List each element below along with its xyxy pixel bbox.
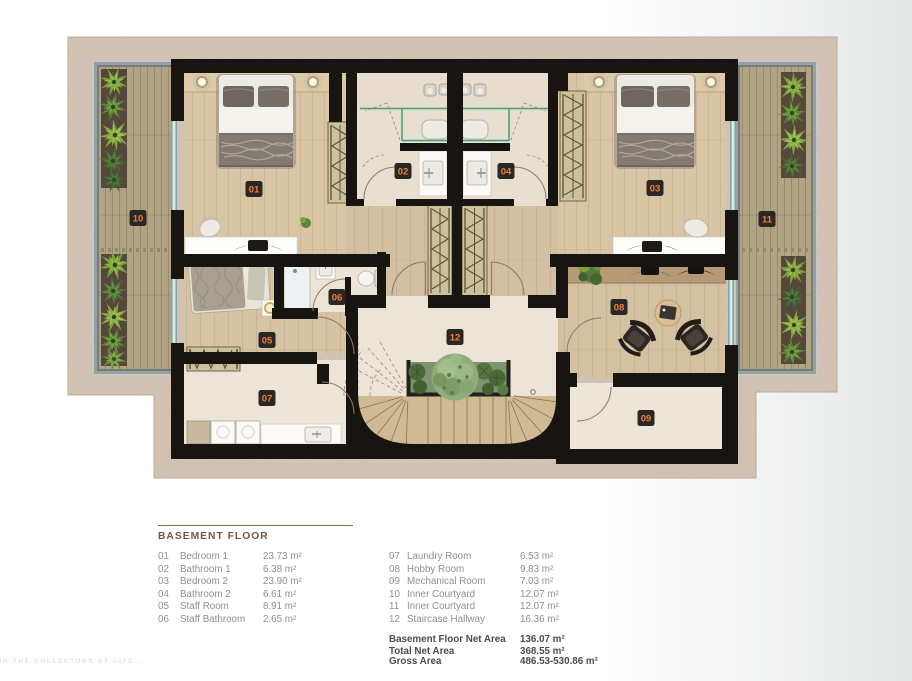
svg-text:04: 04 (501, 167, 512, 178)
svg-text:07: 07 (262, 394, 273, 405)
svg-text:05: 05 (262, 336, 273, 347)
svg-text:06: 06 (332, 293, 343, 304)
svg-text:08: 08 (614, 303, 625, 314)
svg-text:10: 10 (133, 214, 144, 225)
svg-text:12: 12 (450, 333, 461, 344)
svg-text:11: 11 (762, 215, 773, 226)
svg-text:01: 01 (249, 185, 260, 196)
svg-text:03: 03 (650, 184, 661, 195)
svg-text:09: 09 (641, 414, 652, 425)
svg-text:02: 02 (398, 167, 409, 178)
